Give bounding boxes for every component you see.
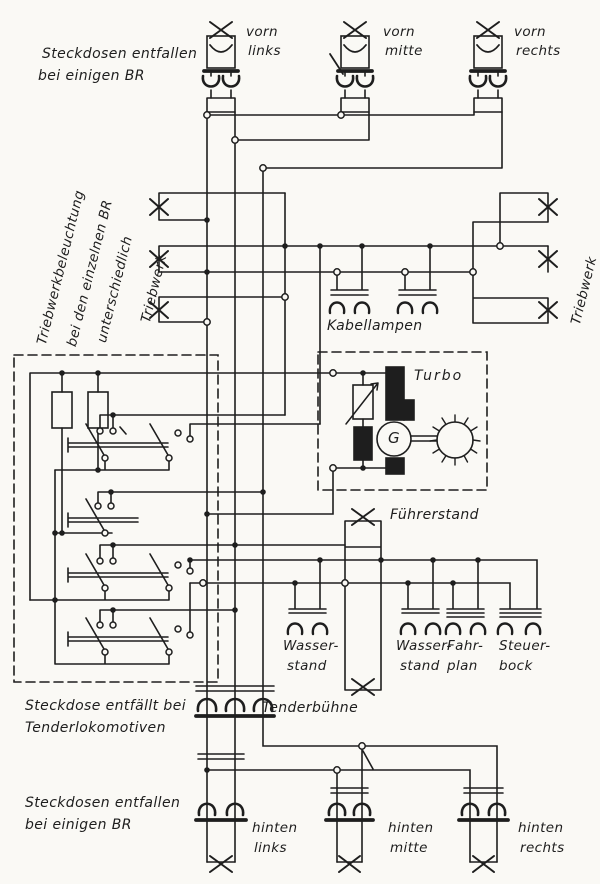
switch-rows	[30, 415, 345, 664]
label-vorn-mitte-1: vorn	[383, 22, 415, 42]
kabellampen-sockets	[330, 246, 437, 313]
label-steuerbock-2: bock	[499, 656, 533, 676]
turbine-wheel	[437, 422, 473, 458]
label-steuerbock-1: Steuer-	[499, 636, 551, 656]
note-bottom-left-line1: Steckdosen entfallen	[25, 793, 180, 814]
label-generator: G	[388, 429, 400, 447]
lamp-vorn-mitte-symbol	[330, 22, 373, 112]
label-hinten-mitte-2: mitte	[390, 838, 428, 858]
label-hinten-links-2: links	[254, 838, 287, 858]
label-hinten-rechts-2: rechts	[520, 838, 565, 858]
label-turbo: Turbo	[414, 366, 463, 387]
label-vorn-mitte-2: mitte	[385, 41, 423, 61]
lamp-hinten-links-symbol	[196, 754, 246, 872]
label-vorn-rechts-1: vorn	[514, 22, 546, 42]
wiring-diagram	[0, 0, 600, 884]
resistor	[354, 427, 372, 460]
note-top-left-line1: Steckdosen entfallen	[42, 44, 197, 65]
socket-buses	[190, 560, 541, 634]
lamp-hinten-mitte-symbol	[326, 788, 373, 872]
schematic-page: Steckdosen entfallen bei einigen BR vorn…	[0, 0, 600, 884]
wire-top-buses	[207, 112, 502, 168]
label-fahrplan-2: plan	[447, 656, 478, 676]
note-top-left-line2: bei einigen BR	[38, 66, 145, 87]
label-fahrplan-1: Fahr-	[447, 636, 483, 656]
note-tender-line2: Tenderlokomotiven	[25, 718, 166, 739]
triebwerk-right-lamps	[473, 193, 557, 323]
lamp-hinten-rechts-symbol	[459, 788, 508, 872]
label-wasserstand1-2: stand	[287, 656, 327, 676]
lamp-vorn-rechts-symbol	[470, 22, 506, 112]
label-vorn-rechts-2: rechts	[516, 41, 561, 61]
wire-trunks	[207, 112, 497, 862]
note-tender-line1: Steckdose entfällt bei	[25, 696, 186, 717]
label-vorn-links-1: vorn	[246, 22, 278, 42]
lamp-vorn-links-symbol	[203, 22, 239, 112]
label-hinten-links-1: hinten	[252, 818, 297, 838]
label-tenderbuehne: Tenderbühne	[262, 698, 358, 719]
triebwerk-left-lamps	[150, 193, 548, 322]
fuehrerstand-tenderbuehne	[345, 509, 381, 695]
label-wasserstand1-1: Wasser-	[283, 636, 339, 656]
label-wasserstand2-2: stand	[400, 656, 440, 676]
label-fuehrerstand: Führerstand	[390, 505, 479, 526]
label-kabellampen: Kabellampen	[327, 316, 423, 337]
label-wasserstand2-1: Wasser-	[396, 636, 452, 656]
label-vorn-links-2: links	[248, 41, 281, 61]
label-hinten-rechts-1: hinten	[518, 818, 563, 838]
label-hinten-mitte-1: hinten	[388, 818, 433, 838]
note-bottom-left-line2: bei einigen BR	[25, 815, 132, 836]
